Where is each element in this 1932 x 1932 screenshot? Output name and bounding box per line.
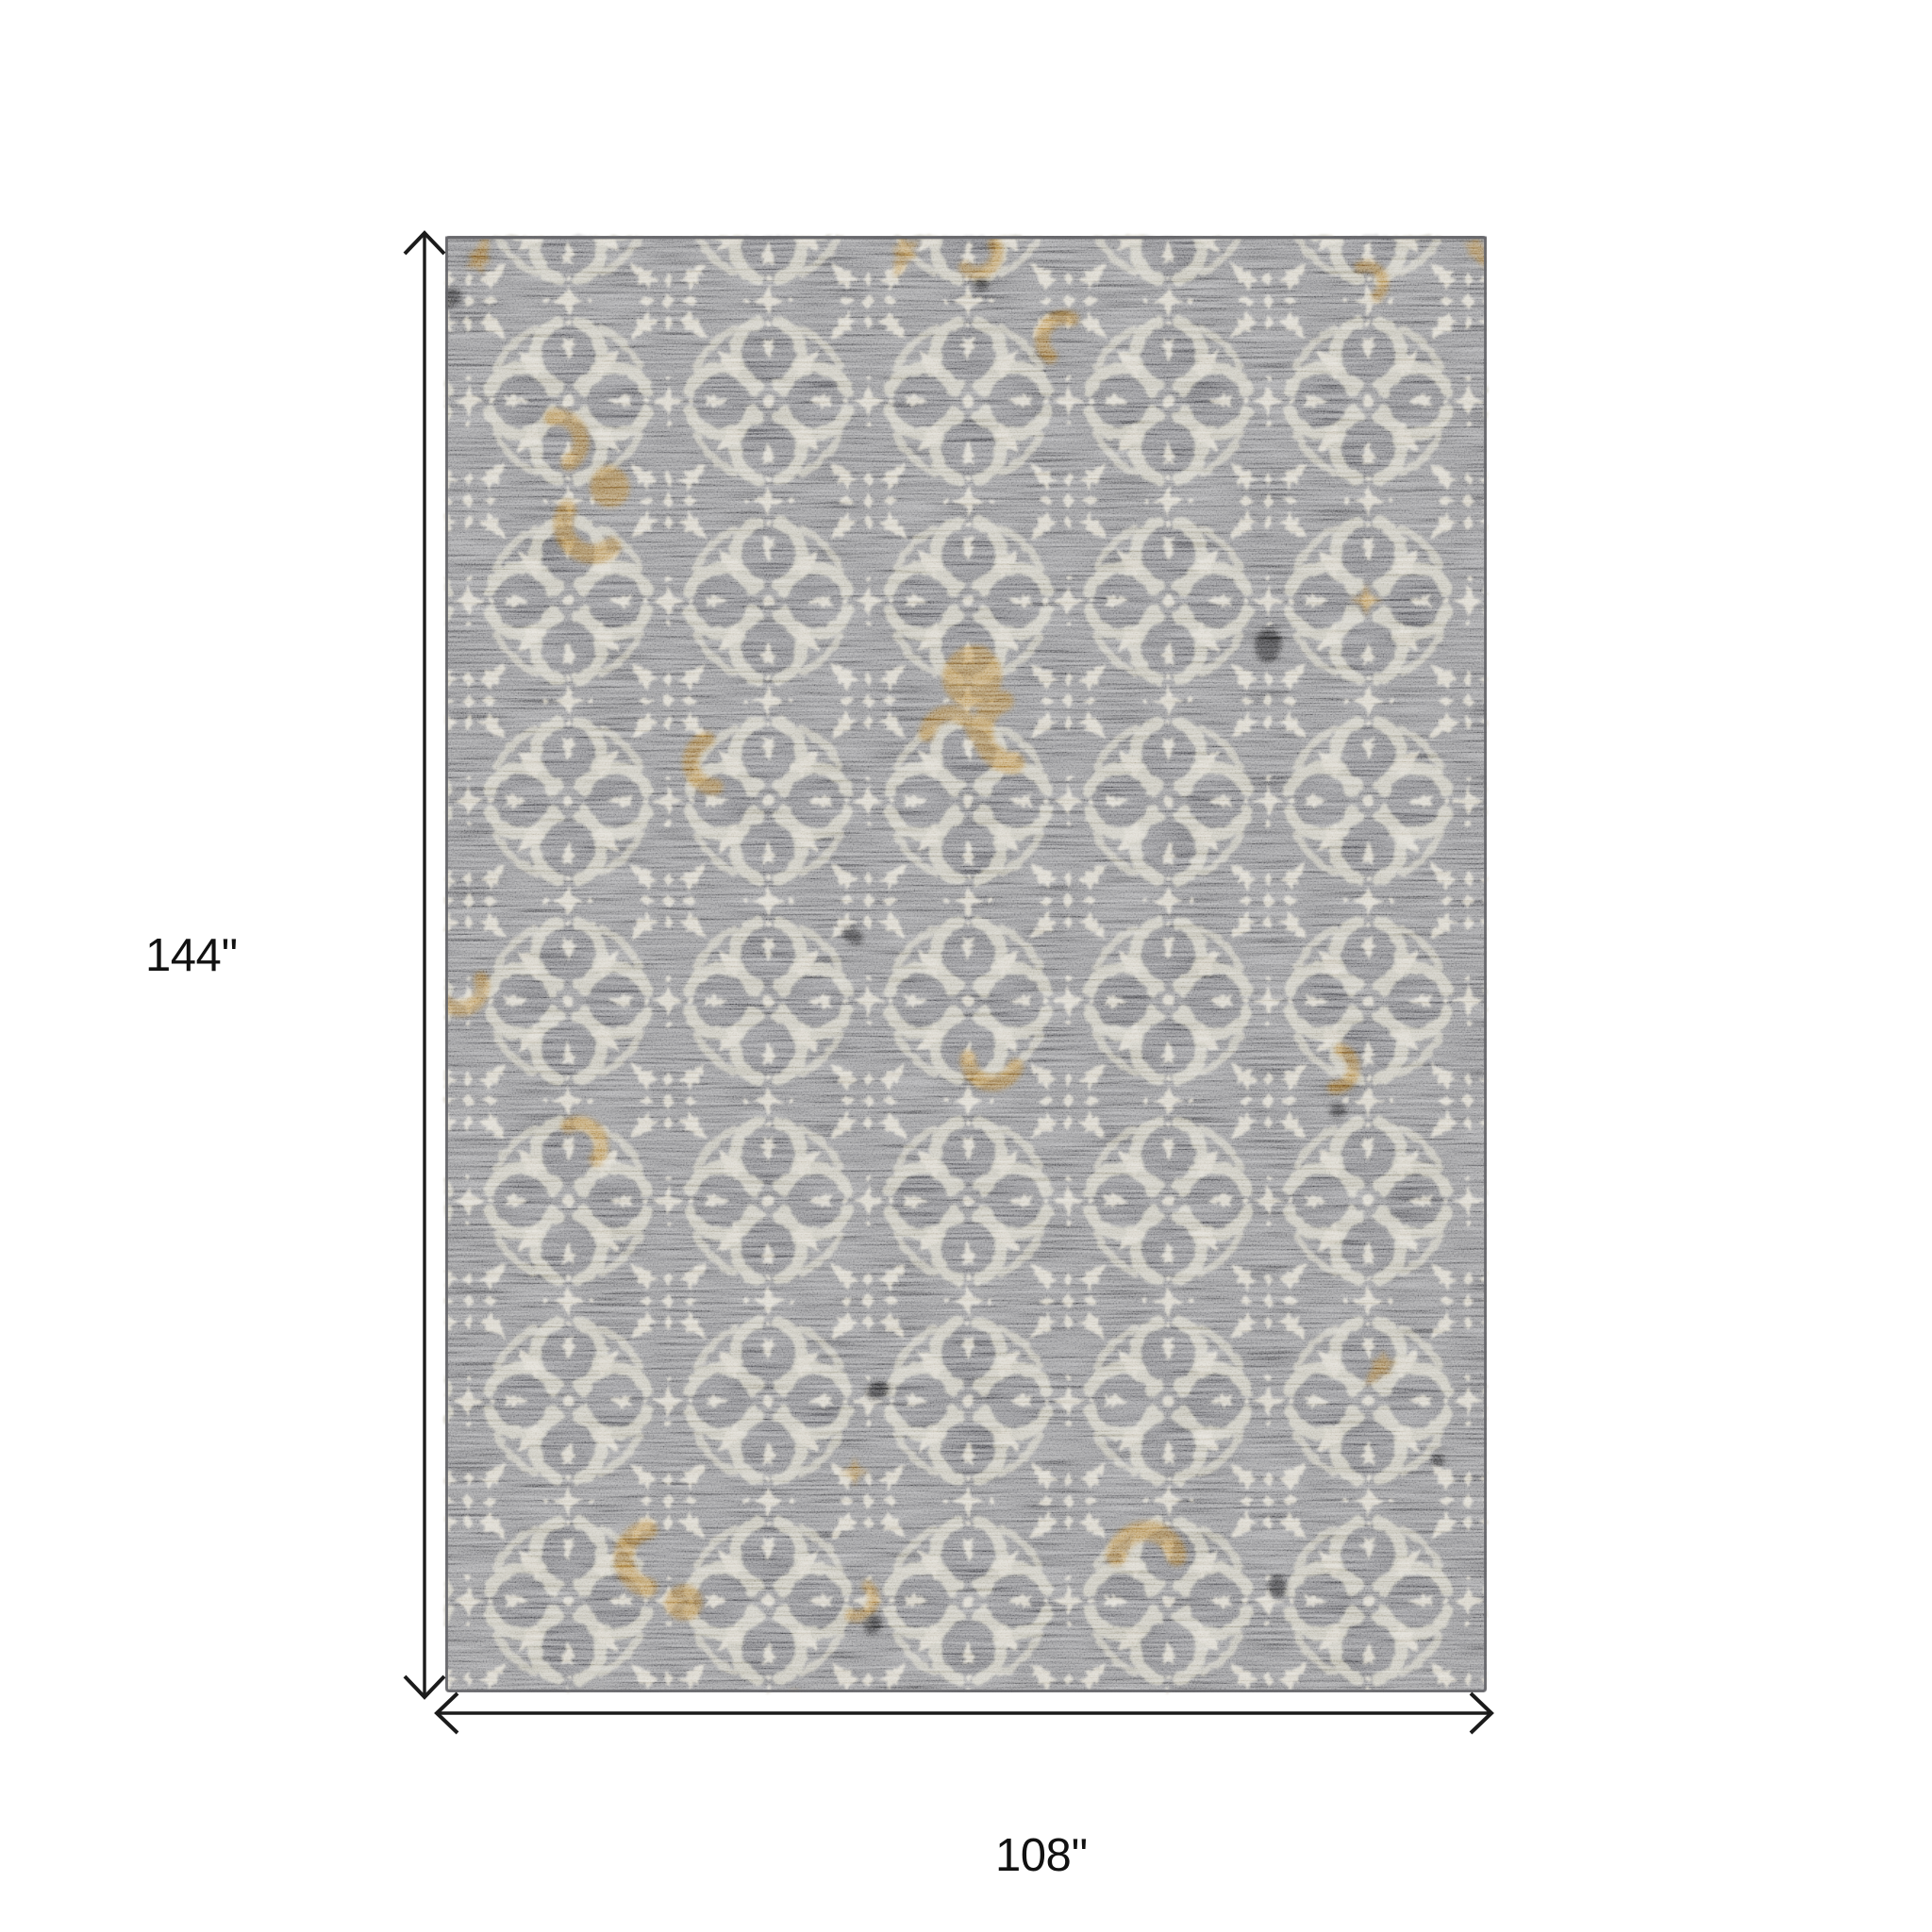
svg-text:144'': 144'' [145,930,238,981]
svg-text:108'': 108'' [995,1830,1088,1881]
